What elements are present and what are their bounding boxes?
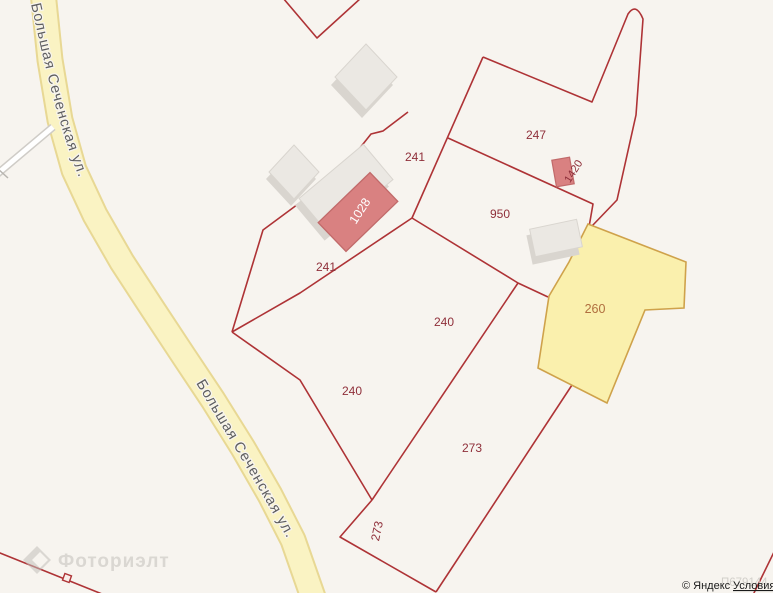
terms-link[interactable]: Условия (733, 580, 773, 592)
copyright-label: © Яндекс (682, 580, 731, 592)
parcel-label-241-left: 241 (316, 260, 336, 274)
map-canvas[interactable]: 1028 1420 247 241 950 241 240 240 273 27… (0, 0, 773, 593)
parcel-label-240-mid: 240 (434, 315, 454, 329)
parcel-label-240-low: 240 (342, 384, 362, 398)
fotorielt-watermark-text: Фоториэлт (58, 551, 170, 572)
parcel-label-247: 247 (526, 128, 546, 142)
attribution: © Яндекс Условия (682, 580, 773, 592)
parcel-label-273-right: 273 (462, 441, 482, 455)
parcel-label-241-top: 241 (405, 150, 425, 164)
parcel-label-950: 950 (490, 207, 510, 221)
vertex-marker (63, 574, 72, 583)
map-view: 1028 1420 247 241 950 241 240 240 273 27… (0, 0, 773, 593)
parcel-label-260: 260 (585, 302, 606, 316)
